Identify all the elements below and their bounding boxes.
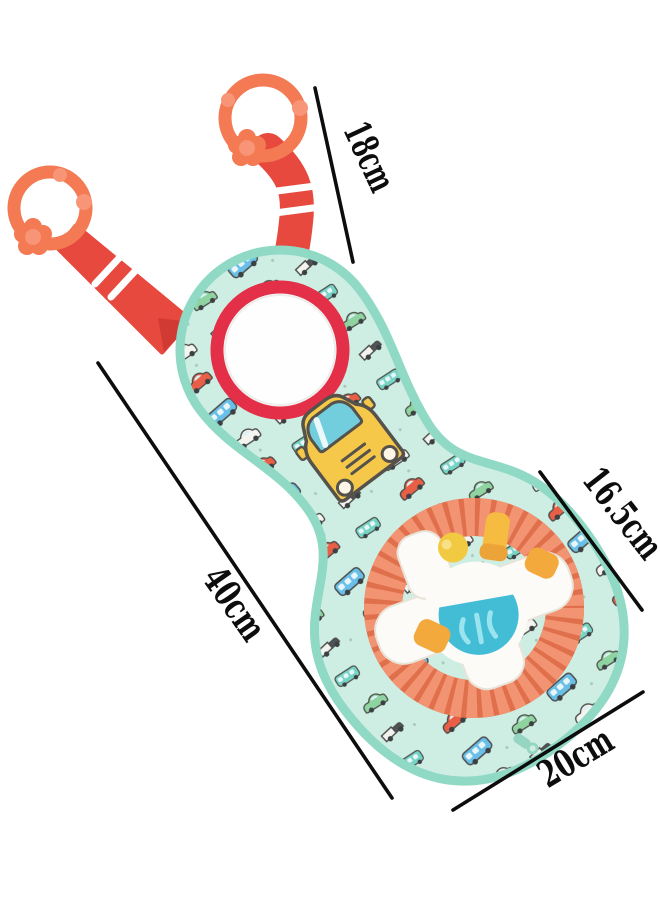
product-photo-toy-steering-wheel: 18cm 16.5cm 40cm 20cm: [0, 0, 660, 900]
left-strap: [58, 226, 192, 352]
dimension-label-panel-length: 40cm: [194, 558, 276, 649]
clip-nub: [221, 93, 235, 107]
dimension-label-strap: 18cm: [335, 115, 405, 199]
product-illustration: 18cm 16.5cm 40cm 20cm: [0, 0, 660, 900]
right-hanging-clip: [221, 80, 308, 166]
dimension-line-strap: [315, 88, 353, 262]
clip-nub: [292, 100, 308, 116]
clip-nub: [76, 194, 92, 210]
clip-nub: [53, 168, 67, 182]
